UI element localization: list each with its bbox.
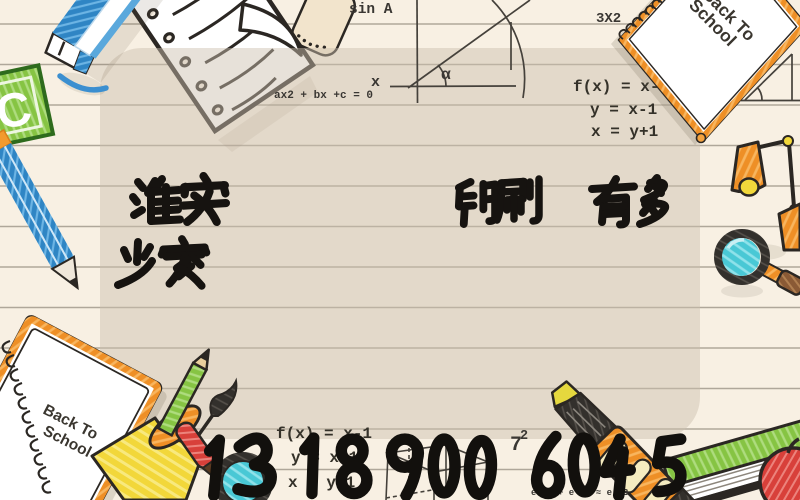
svg-text:α: α — [441, 66, 451, 83]
svg-text:x = y+1: x = y+1 — [591, 123, 658, 141]
svg-text:x: x — [371, 74, 380, 91]
svg-text:ax2 + bx +c = 0: ax2 + bx +c = 0 — [274, 90, 373, 102]
svg-text:2: 2 — [520, 429, 528, 444]
svg-text:3X2: 3X2 — [596, 11, 621, 27]
svg-text:y = x-1: y = x-1 — [590, 101, 657, 119]
svg-text:sin A: sin A — [349, 2, 393, 18]
